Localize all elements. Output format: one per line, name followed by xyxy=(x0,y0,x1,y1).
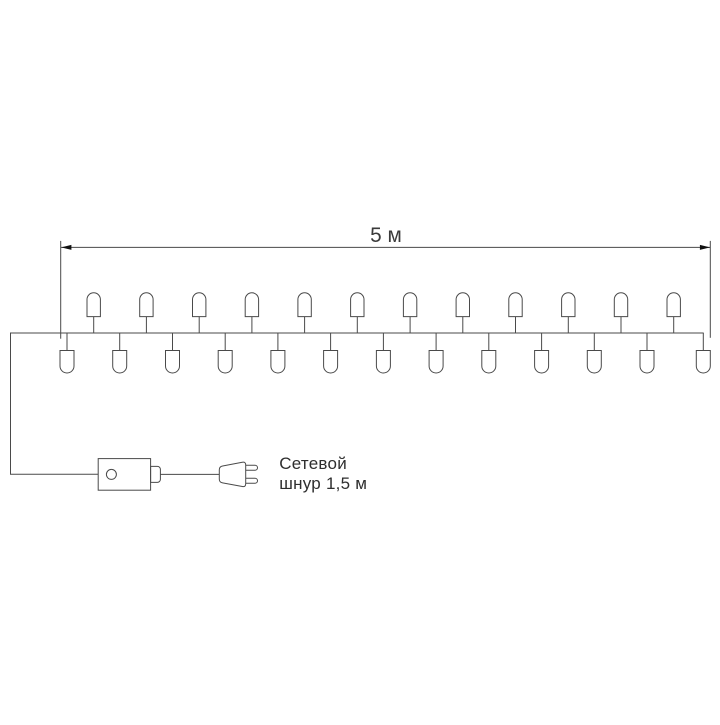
svg-text:шнур 1,5 м: шнур 1,5 м xyxy=(279,474,367,493)
svg-text:Сетевой: Сетевой xyxy=(279,454,347,473)
svg-text:5 м: 5 м xyxy=(370,224,402,247)
